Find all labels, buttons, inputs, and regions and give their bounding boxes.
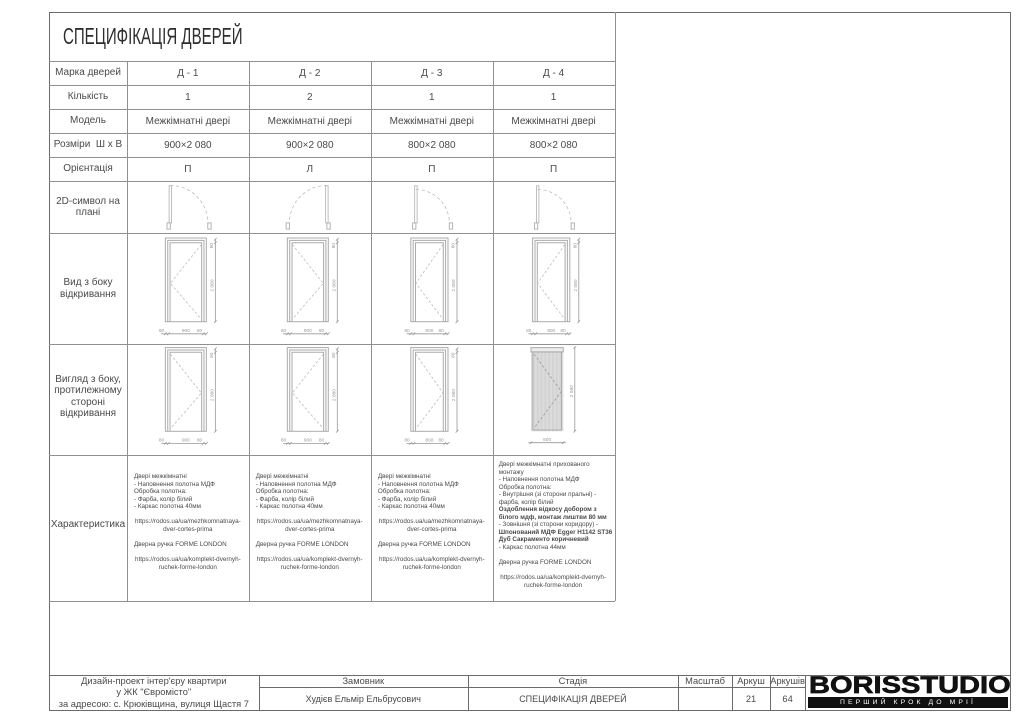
svg-text:2 080: 2 080 (332, 389, 338, 401)
svg-text:800: 800 (547, 328, 555, 334)
svg-text:2 080: 2 080 (569, 385, 575, 397)
svg-text:80: 80 (159, 438, 165, 444)
svg-text:80: 80 (319, 328, 325, 334)
svg-text:900: 900 (182, 438, 190, 444)
svg-text:80: 80 (197, 438, 203, 444)
svg-text:80: 80 (319, 438, 325, 444)
svg-text:900: 900 (304, 328, 312, 334)
svg-text:80: 80 (439, 328, 445, 334)
svg-text:2 080: 2 080 (210, 279, 216, 291)
svg-text:800: 800 (425, 328, 433, 334)
svg-text:80: 80 (526, 328, 532, 334)
svg-text:80: 80 (404, 438, 410, 444)
svg-text:80: 80 (197, 328, 203, 334)
svg-text:80: 80 (209, 243, 215, 249)
svg-text:80: 80 (404, 328, 410, 334)
svg-text:2 080: 2 080 (451, 279, 457, 291)
svg-text:800: 800 (425, 438, 433, 444)
svg-text:80: 80 (159, 328, 165, 334)
svg-text:80: 80 (209, 352, 215, 358)
svg-text:80: 80 (560, 328, 566, 334)
svg-text:900: 900 (182, 328, 190, 334)
svg-text:80: 80 (331, 243, 337, 249)
svg-text:800: 800 (543, 437, 551, 443)
svg-text:900: 900 (304, 438, 312, 444)
svg-text:80: 80 (439, 438, 445, 444)
svg-text:2 080: 2 080 (332, 279, 338, 291)
svg-text:80: 80 (281, 438, 287, 444)
svg-text:80: 80 (331, 352, 337, 358)
svg-text:2 080: 2 080 (573, 279, 579, 291)
svg-text:80: 80 (451, 243, 457, 249)
svg-text:80: 80 (451, 352, 457, 358)
svg-text:80: 80 (281, 328, 287, 334)
svg-text:2 080: 2 080 (451, 389, 457, 401)
svg-text:80: 80 (572, 243, 578, 249)
svg-text:2 080: 2 080 (210, 389, 216, 401)
